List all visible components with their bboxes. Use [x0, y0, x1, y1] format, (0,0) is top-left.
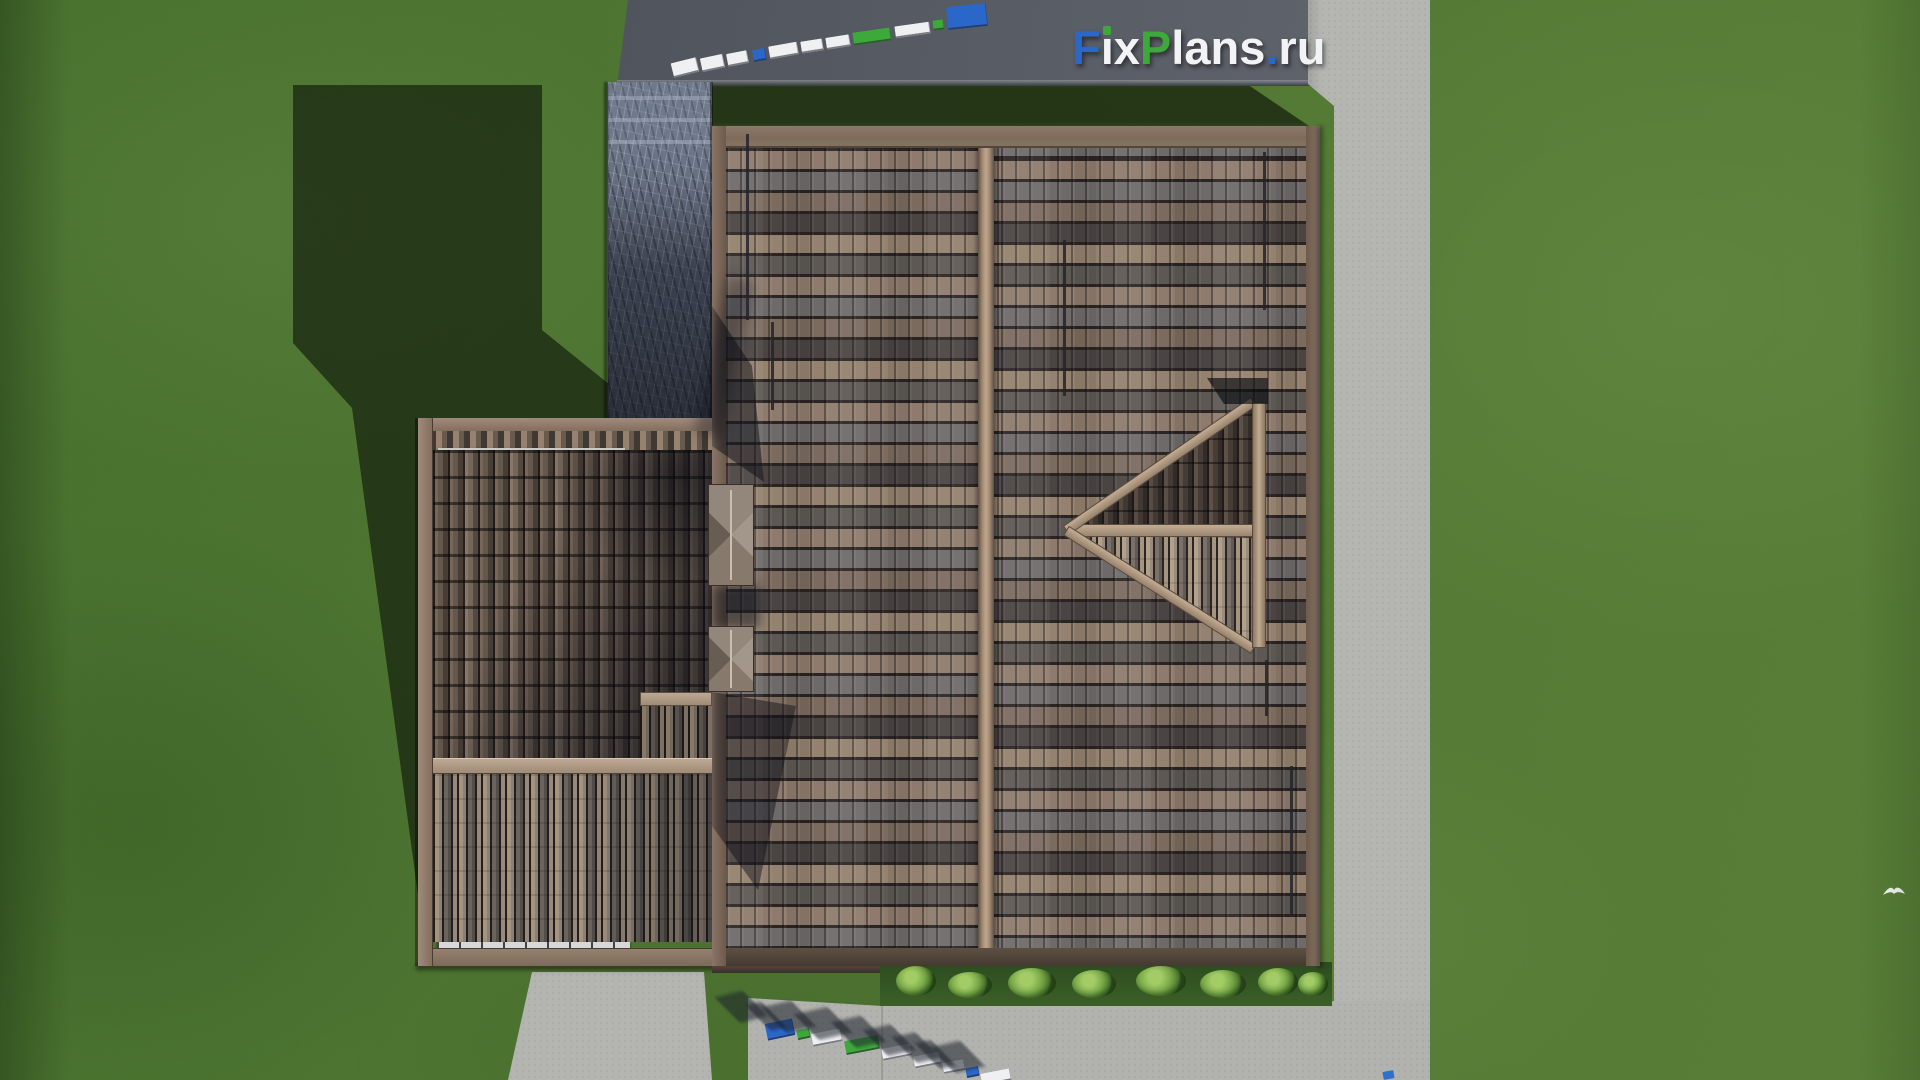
chimney-1 [708, 484, 754, 586]
watermark-block [752, 48, 767, 62]
watermark-i-dot [1103, 26, 1111, 35]
watermark-block [932, 19, 944, 30]
watermark-logo: FıxPlans.ru [1072, 20, 1325, 75]
watermark-letter: l [1171, 20, 1184, 75]
snow-guard-pipe [746, 134, 749, 320]
watermark-letter: s [1239, 20, 1265, 75]
snow-guard-pipe [1265, 660, 1268, 716]
bush [1200, 970, 1246, 998]
watermark-letter: x [1114, 20, 1140, 75]
watermark-letter: u [1297, 20, 1326, 75]
driveway-edge-left [604, 82, 608, 420]
roof-right-edge-shadow [1317, 126, 1323, 968]
roof-wing-left [418, 418, 712, 966]
wing-fascia-left [418, 418, 433, 966]
watermark-letter: F [1072, 20, 1101, 75]
bush [1298, 972, 1328, 996]
aerial-roof-plan-render: FıxPlans.ru [0, 0, 1920, 1080]
wing-fascia-top [418, 418, 712, 432]
watermark-letter: a [1184, 20, 1210, 75]
wing-step-plane [640, 706, 712, 758]
roof-notch-ridge-vertical [1252, 402, 1266, 648]
watermark-letter: P [1140, 20, 1171, 75]
bush [1258, 968, 1298, 996]
watermark-letter: . [1265, 20, 1278, 75]
snow-guard-pipe [1290, 766, 1293, 914]
chimney-shadow-streak-c [712, 586, 760, 628]
wing-edge-shadow [415, 418, 418, 966]
watermark-block [946, 3, 988, 30]
watermark-letter: r [1278, 20, 1296, 75]
roof-fascia-bottom [712, 948, 1320, 966]
shadow-strip-above-roof [608, 82, 1312, 128]
snow-guard-pipe [771, 322, 774, 410]
bush [1008, 968, 1056, 998]
bush [948, 972, 992, 998]
roof-main [712, 126, 1320, 966]
bush [1136, 966, 1186, 996]
driveway-shadow [608, 82, 712, 420]
wing-fascia-bottom [418, 948, 712, 966]
roof-central-ridge [978, 146, 994, 948]
wing-step-ridge [640, 692, 712, 706]
wing-lower-shadow [433, 774, 712, 942]
bird-icon [1882, 884, 1906, 898]
bush [896, 966, 936, 996]
concrete-path-left [508, 972, 712, 1080]
roof-notch-ridge-horizontal [1066, 524, 1254, 537]
roof-fascia-top [712, 126, 1320, 148]
bush [1072, 970, 1116, 998]
watermark-letter: ı [1101, 20, 1114, 75]
chimney-2 [708, 626, 754, 692]
road-curb [617, 80, 1312, 86]
snow-guard-pipe [1263, 152, 1266, 310]
watermark-letter: n [1210, 20, 1239, 75]
wing-lower-ridge [418, 758, 712, 774]
snow-guard-pipe [1063, 240, 1066, 396]
